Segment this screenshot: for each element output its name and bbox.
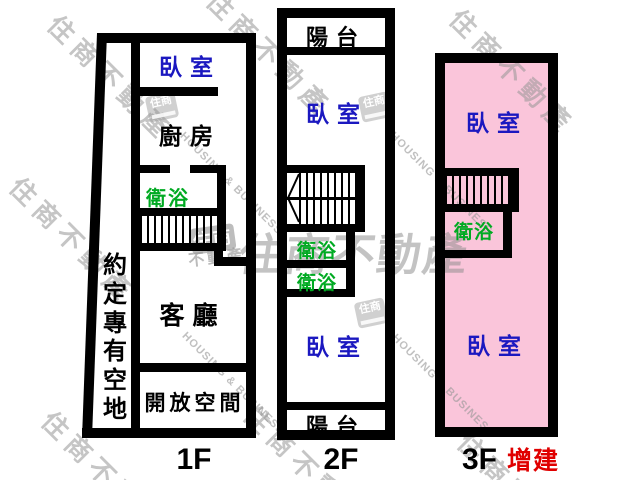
wall	[435, 53, 558, 63]
addition-annotation: 增建	[507, 441, 559, 477]
room-label-balcony-top-2f: 陽台	[287, 20, 385, 52]
room-label-bath2-2f: 衛浴	[288, 268, 346, 295]
room-label-bedroom-1f: 臥室	[140, 48, 240, 82]
room-label-bedroom-bottom-3f: 臥室	[448, 327, 548, 361]
wall	[97, 33, 256, 43]
wall	[548, 53, 558, 437]
watermark-logo-tile: 住商	[354, 297, 389, 329]
wall	[131, 243, 226, 251]
wall	[277, 8, 395, 18]
floor-label-2f: 2F	[301, 443, 381, 477]
floor-label-3f: 3F	[462, 443, 497, 477]
room-label-bath1-2f: 衛浴	[288, 236, 346, 263]
room-label-bedroom-bottom-2f: 臥室	[287, 328, 387, 362]
wall	[131, 165, 170, 173]
wall	[246, 33, 256, 438]
staircase-3f	[445, 176, 510, 204]
wall	[385, 8, 395, 440]
wall	[435, 53, 445, 437]
floor-label-3f-group: 3F 增建	[462, 441, 559, 477]
room-label-bath-1f: 衛浴	[136, 182, 200, 211]
wall	[435, 204, 512, 212]
floor-label-1f: 1F	[154, 443, 234, 477]
wall	[435, 250, 512, 258]
room-label-balcony-bottom-2f: 陽台	[287, 409, 385, 441]
wall	[82, 428, 256, 438]
room-label-open-space-1f: 開放空間	[142, 387, 247, 417]
room-label-bedroom-top-2f: 臥室	[287, 95, 387, 129]
room-label-living-1f: 客廳	[140, 296, 245, 332]
wall	[435, 427, 558, 437]
wall	[131, 33, 140, 438]
floorplan-canvas: 住商不動產 住商不動產 住商不動產 住商不動產 住商不動產 住商不動產 住商不動…	[0, 0, 640, 480]
room-label-kitchen-1f: 廚房	[140, 117, 240, 151]
wall	[356, 165, 365, 232]
room-label-bath-3f: 衛浴	[446, 217, 502, 244]
wall	[131, 363, 246, 372]
staircase-1f	[140, 216, 217, 243]
wall	[346, 224, 355, 297]
strip-label-agreed-open-land: 約定專有空地	[101, 252, 129, 425]
wall	[435, 168, 519, 176]
wall	[140, 87, 218, 96]
watermark-brand-en: HOUSING & BUSINESS	[180, 330, 287, 437]
wall	[277, 165, 365, 173]
room-label-bedroom-top-3f: 臥室	[447, 104, 547, 138]
wall	[214, 257, 246, 266]
staircase-2f-midline	[287, 197, 356, 200]
